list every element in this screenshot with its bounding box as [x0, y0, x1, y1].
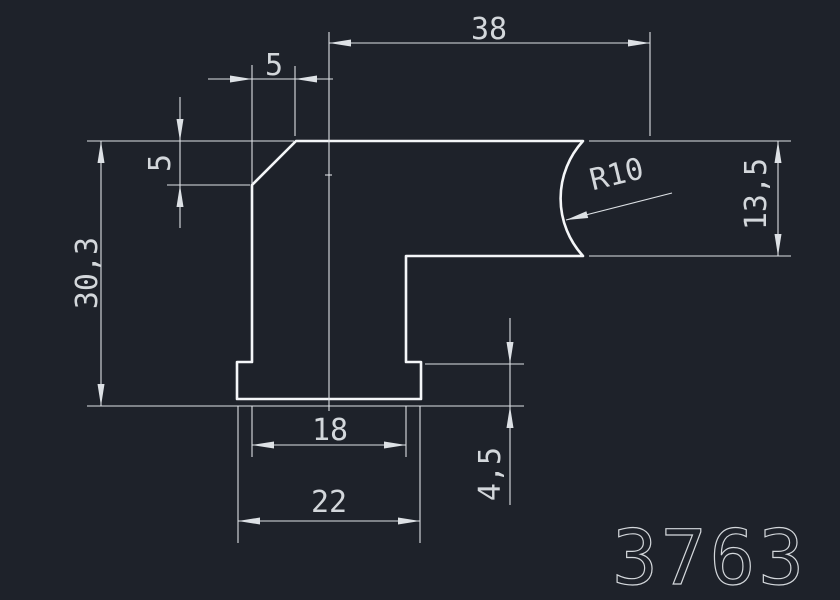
- dimension-label: 30,3: [70, 237, 105, 309]
- arrowhead-right: [398, 518, 420, 525]
- arrowhead-right: [628, 40, 650, 47]
- arrowhead-bottom: [177, 185, 184, 207]
- arrowhead-left: [238, 518, 260, 525]
- dimension-label: 13,5: [739, 158, 774, 230]
- dimension-radius[interactable]: R10: [566, 151, 672, 220]
- dimension-label: 4,5: [473, 447, 508, 501]
- arrowhead-left: [230, 76, 252, 83]
- dimension-label: 5: [265, 48, 283, 83]
- reference-lines[interactable]: [87, 141, 791, 406]
- dimension-label: 5: [143, 154, 178, 172]
- part-number[interactable]: 3763: [612, 513, 807, 600]
- dimension-chamfer-height[interactable]: 5: [143, 97, 250, 228]
- arrowhead-bottom: [98, 384, 105, 406]
- dimension-stem-width[interactable]: 18: [252, 406, 406, 457]
- arrowhead: [566, 211, 588, 220]
- arrowhead-top: [177, 119, 184, 141]
- dimension-label: 38: [471, 12, 507, 47]
- dimension-base-height[interactable]: 4,5: [425, 318, 524, 505]
- profile-outline[interactable]: [237, 141, 583, 399]
- dimension-right-arm-height[interactable]: 13,5: [739, 141, 782, 256]
- arrowhead-right: [384, 442, 406, 449]
- arrowhead-top: [98, 141, 105, 163]
- arrowhead-left: [329, 40, 351, 47]
- dimension-overall-height[interactable]: 30,3: [70, 141, 105, 406]
- arrowhead-left: [252, 442, 274, 449]
- arrowhead-bottom: [507, 406, 514, 428]
- dimension-label: 22: [311, 485, 347, 520]
- arrowhead-bottom: [775, 234, 782, 256]
- dimension-label: R10: [586, 151, 647, 198]
- dimension-label: 18: [312, 413, 348, 448]
- dimension-chamfer-width[interactable]: 5: [208, 48, 333, 184]
- cad-viewport: 38 5 5 30,3 R10 13,5: [0, 0, 840, 600]
- arrowhead-right: [295, 76, 317, 83]
- arrowhead-top: [507, 342, 514, 364]
- arrowhead-top: [775, 141, 782, 163]
